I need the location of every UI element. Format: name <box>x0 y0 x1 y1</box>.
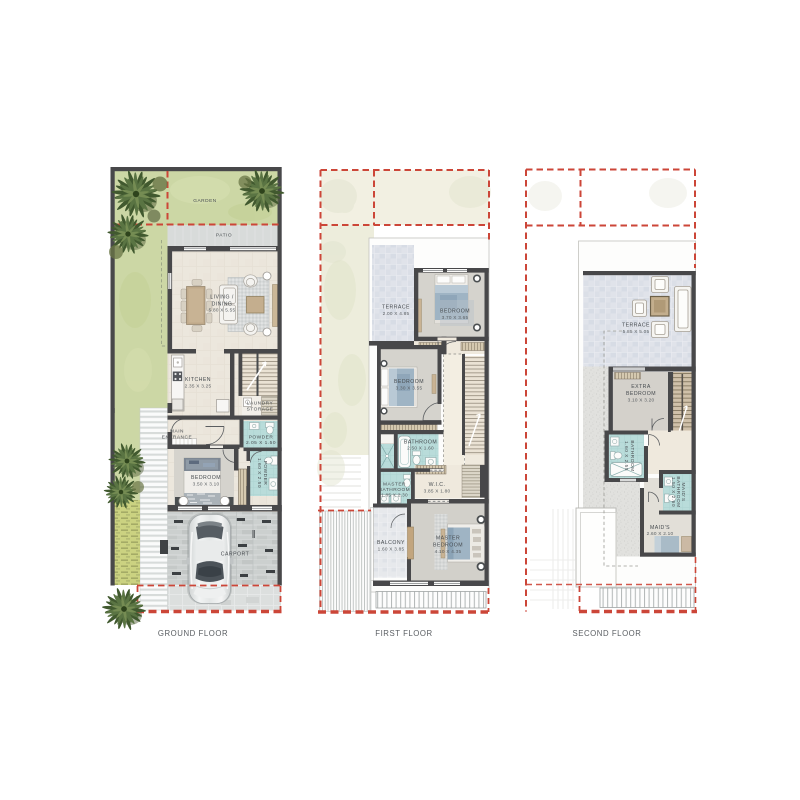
svg-text:POWDER: POWDER <box>249 435 274 441</box>
svg-text:1.60 X 2.50: 1.60 X 2.50 <box>256 458 262 488</box>
svg-text:MASTER: MASTER <box>436 536 460 542</box>
svg-text:SECOND FLOOR: SECOND FLOOR <box>573 629 642 638</box>
svg-text:1.60 X 3.85: 1.60 X 3.85 <box>378 547 405 552</box>
svg-text:3.50 X 3.10: 3.50 X 3.10 <box>193 482 220 487</box>
svg-text:2.00 X 4.85: 2.00 X 4.85 <box>383 311 410 316</box>
svg-text:3.10 X 3.20: 3.10 X 3.20 <box>628 398 655 403</box>
svg-text:CARPORT: CARPORT <box>221 552 250 558</box>
svg-text:POWDER: POWDER <box>262 461 268 486</box>
svg-text:5.85 X 5.05: 5.85 X 5.05 <box>623 329 650 334</box>
svg-text:BEDROOM: BEDROOM <box>394 379 424 385</box>
svg-text:5.80 X 5.55: 5.80 X 5.55 <box>209 308 236 313</box>
svg-text:MAIN: MAIN <box>170 429 184 435</box>
svg-text:3.30 X 3.55: 3.30 X 3.55 <box>396 386 423 391</box>
svg-text:BATHROOM: BATHROOM <box>629 440 635 471</box>
svg-text:STORAGE: STORAGE <box>247 407 274 413</box>
svg-text:TERRACE: TERRACE <box>382 305 410 311</box>
svg-text:ENTRANCE: ENTRANCE <box>162 435 192 441</box>
svg-text:2.35 X 3.25: 2.35 X 3.25 <box>185 384 212 389</box>
svg-text:LIVING /: LIVING / <box>210 295 234 301</box>
svg-text:FIRST FLOOR: FIRST FLOOR <box>375 629 432 638</box>
svg-text:3.70 X 3.65: 3.70 X 3.65 <box>442 315 469 320</box>
svg-text:2.50 X 1.60: 2.50 X 1.60 <box>407 446 434 451</box>
svg-text:BEDROOM: BEDROOM <box>440 309 470 315</box>
svg-text:1.85 X 2.30: 1.85 X 2.30 <box>381 493 408 498</box>
svg-text:4.10 X 4.35: 4.10 X 4.35 <box>435 549 462 554</box>
svg-text:BEDROOM: BEDROOM <box>433 543 463 549</box>
svg-text:GARDEN: GARDEN <box>193 198 217 204</box>
svg-text:KITCHEN: KITCHEN <box>185 377 211 383</box>
svg-text:BALCONY: BALCONY <box>377 540 405 546</box>
svg-text:TERRACE: TERRACE <box>622 323 650 329</box>
svg-text:EXTRA: EXTRA <box>631 384 651 390</box>
svg-text:GROUND FLOOR: GROUND FLOOR <box>158 629 228 638</box>
svg-text:MASTER: MASTER <box>383 482 406 488</box>
svg-text:BEDROOM: BEDROOM <box>626 391 656 397</box>
svg-text:1.60 X 2.55: 1.60 X 2.55 <box>623 441 629 471</box>
svg-text:2.05 X 1.50: 2.05 X 1.50 <box>246 440 276 446</box>
svg-text:3.85 X 1.80: 3.85 X 1.80 <box>424 489 451 494</box>
svg-text:LAUNDRY: LAUNDRY <box>247 401 274 407</box>
svg-text:2.60 X 2.10: 2.60 X 2.10 <box>647 531 674 536</box>
svg-text:PATIO: PATIO <box>216 233 232 239</box>
svg-text:BEDROOM: BEDROOM <box>191 475 221 481</box>
svg-text:W.I.C.: W.I.C. <box>429 482 446 488</box>
svg-text:1.50 X 2.60: 1.50 X 2.60 <box>670 477 676 507</box>
